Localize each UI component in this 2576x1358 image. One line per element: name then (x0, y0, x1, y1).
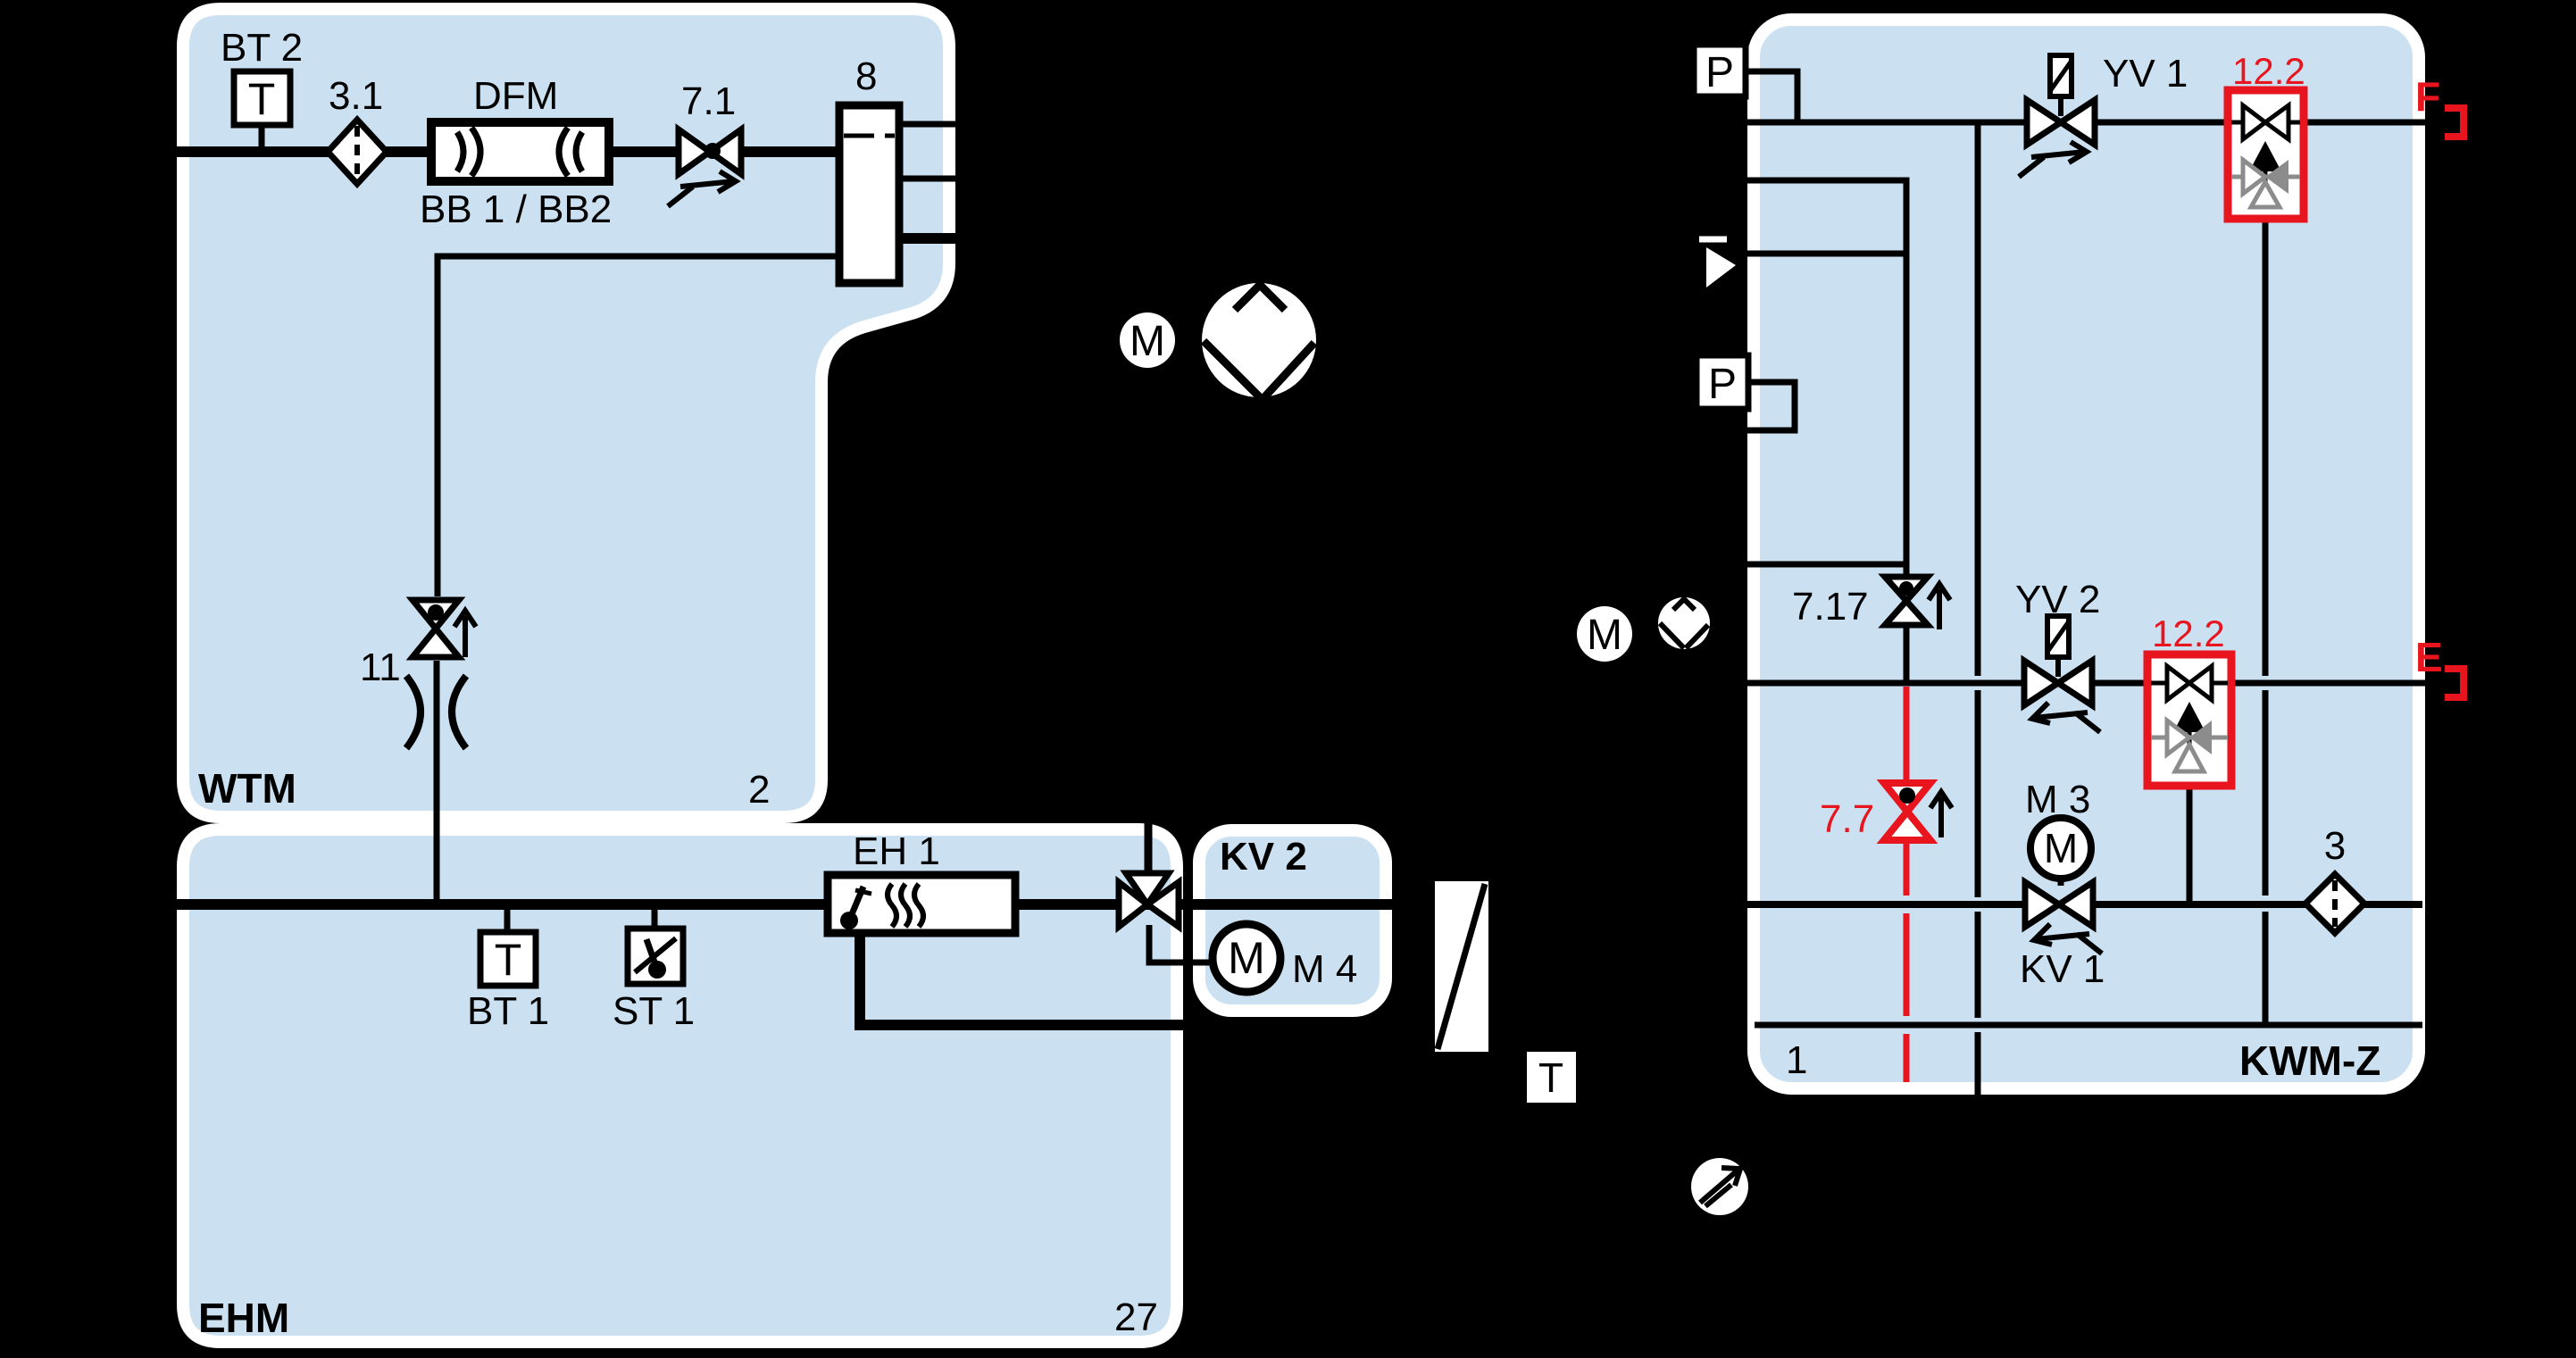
valve-717-label: 7.17 (1792, 585, 1869, 629)
p1-symbol: P (1705, 49, 1734, 96)
conn-e-label: E (2415, 634, 2443, 680)
valve-77-label: 7.7 (1820, 797, 1874, 841)
check-bottom-label: 12.2 (2152, 612, 2225, 654)
kv2-title: KV 2 (1220, 835, 1307, 879)
valve-11-dot (428, 604, 444, 621)
valve-71-dot (704, 143, 721, 159)
bt2-label: BT 2 (221, 26, 303, 70)
st1-label: ST 1 (613, 989, 695, 1033)
conn-e-bracket-icon (2445, 669, 2463, 697)
eline-pump (1658, 597, 1710, 649)
filter-3-label: 3 (2324, 824, 2346, 868)
pump-top-motor-symbol: M (1130, 318, 1165, 365)
tank-8-label: 8 (855, 54, 877, 98)
wtm-page-number: 2 (748, 768, 770, 812)
outlet-funnel-icon (1699, 239, 1736, 287)
pump-top (1202, 283, 1316, 398)
kwmz-title: KWM-Z (2239, 1037, 2380, 1084)
kwmz-page-number: 1 (1786, 1038, 1807, 1082)
p2-symbol: P (1708, 361, 1737, 408)
external-elements (1120, 45, 1748, 1215)
check-unit-bottom (2147, 654, 2231, 786)
heat-exchanger (1435, 881, 1488, 1052)
tank-8 (839, 105, 899, 283)
bb-label: BB 1 / BB2 (420, 187, 612, 231)
dfm-flowmeter-box (431, 122, 609, 181)
eh1-label: EH 1 (853, 829, 940, 873)
flow-direction-badge (1691, 1158, 1748, 1215)
ehm-title: EHM (198, 1295, 289, 1341)
m4-symbol: M (1228, 933, 1265, 983)
m3-label: M 3 (2025, 778, 2090, 821)
wtm-title: WTM (198, 765, 296, 812)
m4-label: M 4 (1292, 947, 1357, 991)
ehm-page-number: 27 (1114, 1296, 1158, 1339)
dfm-label: DFM (473, 74, 558, 118)
bt1-symbol: T (495, 935, 522, 985)
check-unit-top (2228, 90, 2304, 219)
piping-diagram: BT 2 T 3.1 DFM BB 1 / BB2 7.1 8 11 WTM 2… (0, 0, 2576, 1358)
m3-symbol: M (2044, 825, 2078, 871)
filter-31-label: 3.1 (329, 74, 383, 118)
conn-f-label: F (2415, 73, 2440, 120)
kv1-label: KV 1 (2020, 947, 2105, 991)
hx-sensor-symbol: T (1538, 1054, 1563, 1101)
eline-motor-symbol: M (1587, 612, 1622, 659)
bt1-label: BT 1 (467, 989, 549, 1033)
valve-71-label: 7.1 (681, 79, 736, 123)
yv2-label: YV 2 (2015, 578, 2100, 621)
schematic-canvas: BT 2 T 3.1 DFM BB 1 / BB2 7.1 8 11 WTM 2… (0, 0, 2576, 1358)
conn-f-bracket-icon (2445, 108, 2463, 137)
bt2-symbol: T (248, 74, 276, 124)
yv1-label: YV 1 (2103, 52, 2188, 96)
check-top-label: 12.2 (2232, 50, 2305, 92)
valve-11-label: 11 (360, 646, 401, 689)
